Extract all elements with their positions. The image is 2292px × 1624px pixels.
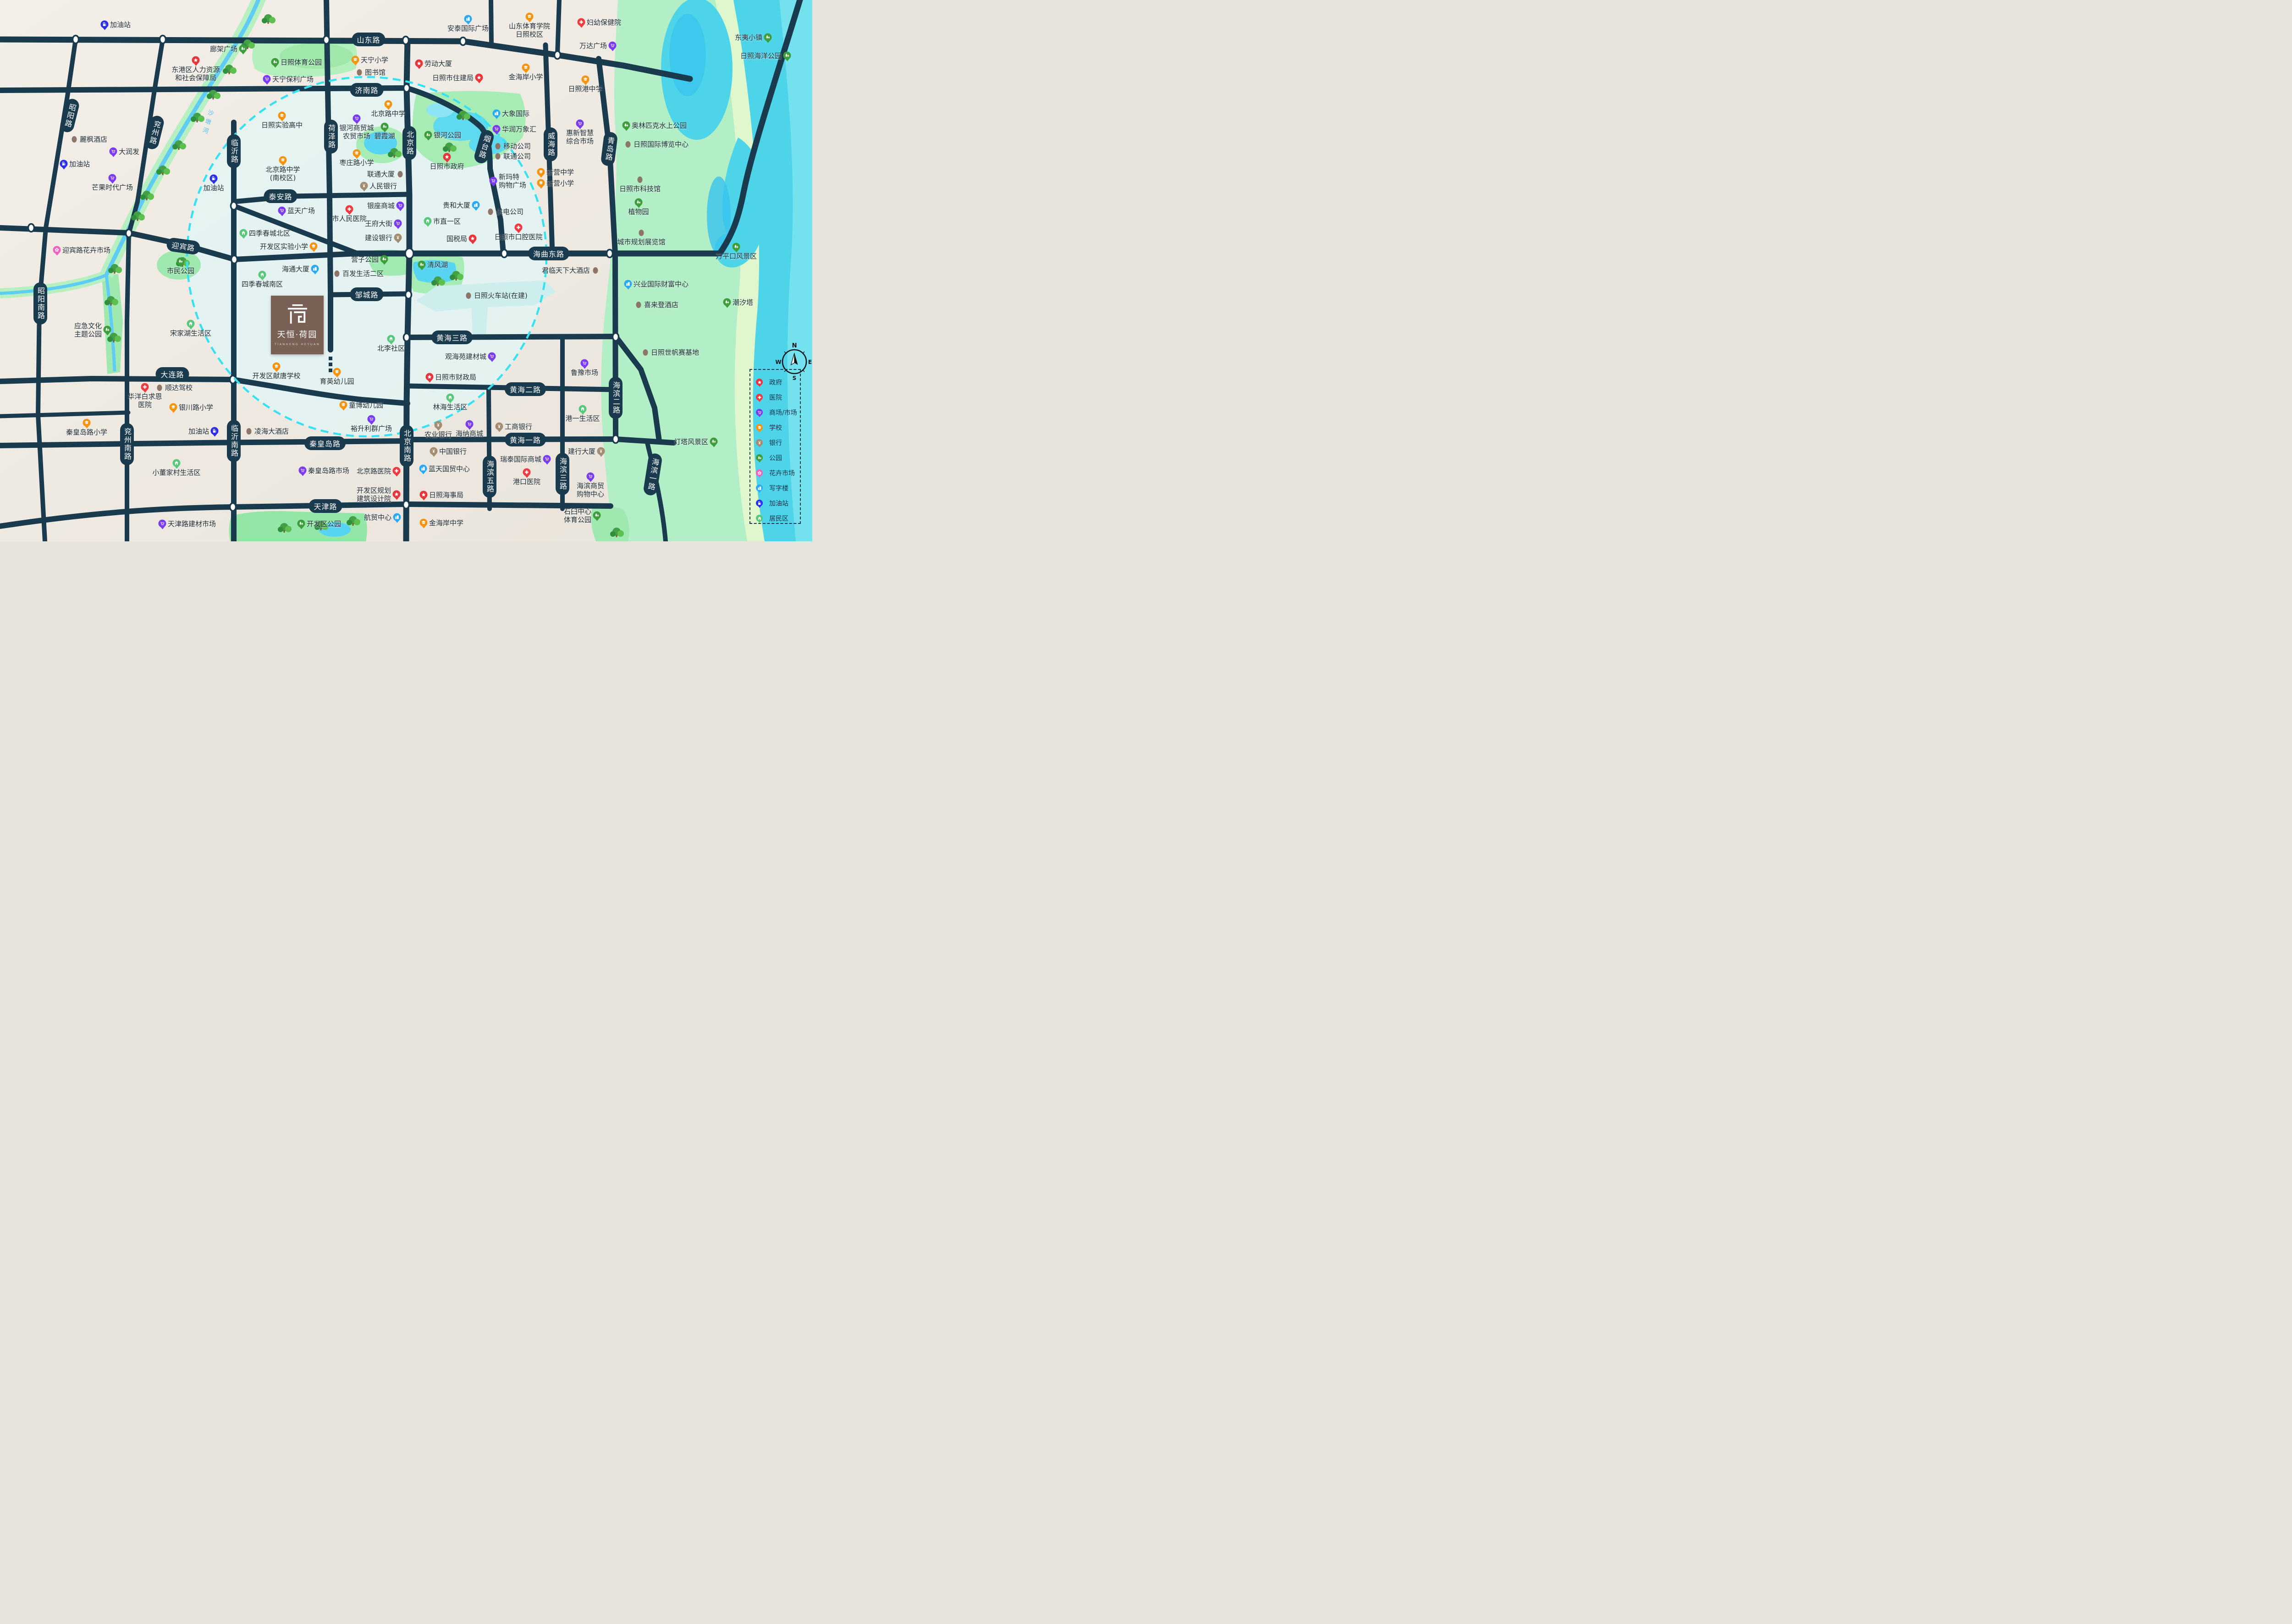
res-pin-icon[interactable]: [387, 335, 395, 343]
office-pin-icon[interactable]: [624, 280, 632, 288]
poi-label: 贵和大厦: [443, 201, 470, 209]
poi-label-line: 航贸中心: [364, 513, 391, 522]
poi-label: 加油站: [188, 427, 209, 435]
poi-label: 开发区实验小学: [260, 242, 308, 251]
park-pin-icon[interactable]: [783, 52, 791, 60]
market-pin-icon[interactable]: [587, 473, 595, 480]
legend-label: 花卉市场: [769, 468, 795, 478]
legend-label: 医院: [769, 393, 782, 402]
office-pin-icon[interactable]: [393, 513, 401, 521]
legend-label: 政府: [769, 378, 782, 387]
poi-label: 新玛特购物广场: [499, 173, 526, 189]
poi-label: 小董家村生活区: [152, 468, 200, 477]
park-pin-icon[interactable]: [424, 131, 432, 139]
road-label-pill: 山东路: [352, 33, 385, 46]
poi-label: 国税局: [446, 235, 467, 243]
poi-label-line: 工商银行: [505, 423, 532, 431]
gov-pin-icon[interactable]: [415, 60, 423, 67]
poi-label-line: 四季春城北区: [249, 229, 290, 237]
poi-label: 银河公园: [434, 131, 461, 139]
poi-label: 瑞泰国际商城: [500, 455, 541, 463]
poi-label: 加油站: [69, 160, 90, 168]
office-pin-icon[interactable]: [464, 15, 472, 23]
poi-label: 建设银行: [365, 234, 392, 242]
compass-w: W: [775, 359, 781, 365]
park-pin-icon[interactable]: [271, 58, 279, 66]
gov-pin-icon[interactable]: [475, 74, 483, 82]
poi-label-line: 中国银行: [439, 447, 467, 456]
poi-dot-icon[interactable]: [335, 270, 340, 277]
road-label-pill: 秦皇岛路: [304, 436, 346, 450]
poi-dot-icon[interactable]: [247, 428, 252, 435]
school-pin-icon[interactable]: [340, 401, 347, 409]
res-pin-icon[interactable]: [446, 394, 454, 402]
poi-label-line: 顺达驾校: [165, 384, 193, 392]
market-pin-icon[interactable]: [353, 115, 361, 122]
poi-label: 日照海洋公园: [740, 52, 782, 60]
poi-label-line: 廊架广场: [210, 45, 237, 53]
road-label-pill: 泰安路: [264, 189, 297, 203]
poi-label: 安泰国际广场: [447, 24, 489, 33]
poi-label-line: 加油站: [203, 184, 224, 192]
flower-pin-icon[interactable]: [53, 246, 61, 254]
poi-label: 开发区献唐学校: [252, 372, 300, 380]
poi-label: 惠新智慧综合市场: [566, 129, 594, 145]
poi-label-line: 日照校区: [509, 30, 550, 39]
legend-item: 银行: [756, 435, 800, 450]
road-label-pill: 昭阳南路: [33, 282, 47, 325]
school-pin-icon[interactable]: [537, 168, 545, 176]
park-pin-icon[interactable]: [623, 121, 630, 129]
road-label-pill: 海曲东路: [528, 247, 569, 260]
school-pin-icon[interactable]: [385, 100, 392, 108]
poi-label-line: 联通大厦: [367, 170, 395, 178]
school-pin-icon[interactable]: [83, 419, 91, 427]
poi-label-line: 加油站: [69, 160, 90, 168]
market-pin-icon[interactable]: [576, 120, 584, 127]
poi-dot-icon[interactable]: [626, 141, 631, 148]
poi-label-line: 开发区规划: [357, 486, 391, 495]
poi-label: 鲁豫市场: [571, 369, 598, 377]
poi-label: 清风湖: [427, 261, 448, 269]
poi-label-line: 体育公园: [564, 516, 591, 524]
market-pin-icon[interactable]: [466, 420, 474, 428]
gov-pin-icon[interactable]: [420, 491, 428, 499]
poi-label-line: 日照实验高中: [261, 121, 303, 129]
poi-label-line: 开发区实验小学: [260, 242, 308, 251]
market-pin-icon[interactable]: [110, 148, 117, 155]
park-pin-icon[interactable]: [723, 298, 731, 306]
market-pin-icon[interactable]: [490, 177, 497, 185]
poi-label: 农业银行: [424, 430, 452, 439]
poi-label: 枣庄路小学: [339, 159, 374, 167]
poi-dot-icon[interactable]: [488, 209, 493, 215]
park-pin-icon[interactable]: [635, 198, 643, 206]
gas-pin-icon[interactable]: [210, 175, 218, 182]
poi-label: 日照市财政局: [435, 373, 476, 381]
poi-label-line: 图书馆: [365, 68, 386, 77]
road-label-pill: 济南路: [350, 83, 383, 97]
poi-label: 宋家湖生活区: [170, 329, 211, 337]
park-pin-icon[interactable]: [593, 512, 601, 519]
poi-dot-icon[interactable]: [638, 176, 643, 183]
market-pin-icon[interactable]: [581, 359, 589, 367]
poi-label: 海纳商城: [456, 429, 483, 438]
poi-dot-icon[interactable]: [398, 171, 403, 177]
poi-dot-icon[interactable]: [72, 136, 77, 143]
res-pin-icon[interactable]: [187, 320, 195, 328]
poi-dot-icon[interactable]: [496, 143, 501, 149]
park-pin-icon[interactable]: [733, 243, 740, 251]
poi-label: 供电公司: [496, 208, 523, 216]
road-label-pill: 邹城路: [350, 287, 383, 301]
legend-item: 居民区: [756, 511, 800, 526]
poi-label: 植物园: [628, 208, 649, 216]
poi-label-line: 宋家湖生活区: [170, 329, 211, 337]
legend-label: 加油站: [769, 499, 788, 508]
res-pin-icon: [756, 515, 763, 522]
poi-label: 新营中学: [546, 168, 574, 176]
poi-label: 港口医院: [513, 478, 540, 486]
poi-dot-icon[interactable]: [639, 230, 644, 236]
bank-pin-icon[interactable]: [496, 423, 503, 430]
poi-label: 麗枫酒店: [80, 135, 107, 143]
road-label-pill: 临沂南路: [227, 420, 241, 462]
poi-label-line: 日照市口腔医院: [494, 233, 542, 241]
poi-label: 劳动大厦: [424, 60, 452, 68]
school-pin-icon[interactable]: [333, 368, 341, 376]
market-pin-icon[interactable]: [299, 467, 307, 474]
school-pin-icon[interactable]: [279, 156, 287, 164]
park-pin-icon[interactable]: [298, 520, 305, 528]
office-pin-icon[interactable]: [472, 201, 480, 209]
poi-dot-icon[interactable]: [157, 385, 162, 391]
poi-label-line: 瑞泰国际商城: [500, 455, 541, 463]
poi-label-line: 鲁豫市场: [571, 369, 598, 377]
poi-label-line: 日照海洋公园: [740, 52, 782, 60]
poi-label-line: 天宁保利广场: [272, 75, 314, 83]
poi-dot-icon[interactable]: [496, 153, 501, 160]
poi-label-line: 日照市政府: [430, 162, 464, 171]
poi-label: 北京路中学: [371, 110, 405, 118]
poi-label-line: 日照世帆赛基地: [651, 348, 699, 357]
market-pin-icon[interactable]: [609, 42, 617, 50]
park-pin-icon[interactable]: [710, 438, 718, 446]
poi-label-line: 日照国际博览中心: [634, 140, 689, 149]
market-pin-icon[interactable]: [394, 220, 402, 227]
poi-label-line: 日照市科技馆: [619, 185, 661, 193]
legend-label: 居民区: [769, 514, 788, 523]
map-legend: 政府医院商场/市场学校银行公园花卉市场写字楼加油站居民区: [749, 369, 801, 524]
legend-label: 银行: [769, 438, 782, 447]
school-pin-icon[interactable]: [278, 112, 286, 120]
poi-label-line: 贵和大厦: [443, 201, 470, 209]
poi-label: 日照实验高中: [261, 121, 303, 129]
poi-label: 银川路小学: [179, 403, 213, 412]
market-pin-icon[interactable]: [263, 75, 271, 83]
hosp-pin-icon[interactable]: [578, 18, 585, 26]
poi-label: 观海苑建材城: [445, 352, 486, 361]
school-pin-icon[interactable]: [170, 403, 177, 411]
poi-label: 银座商城: [367, 202, 395, 210]
poi-label: 市直一区: [433, 217, 461, 226]
poi-label-line: 植物园: [628, 208, 649, 216]
poi-label-line: 裕升利群广场: [351, 424, 392, 433]
poi-label: 联通大厦: [367, 170, 395, 178]
market-pin-icon[interactable]: [488, 352, 496, 360]
res-pin-icon[interactable]: [173, 459, 181, 467]
poi-label-line: 北京路中学: [265, 165, 300, 174]
poi-label: 芒果时代广场: [92, 183, 133, 192]
road-label-pill: 黄海二路: [505, 382, 546, 396]
bank-pin-icon[interactable]: [430, 447, 438, 455]
poi-label: 喜来登酒店: [644, 301, 678, 309]
legend-label: 商场/市场: [769, 408, 797, 417]
poi-label-line: 四季春城南区: [242, 280, 283, 288]
poi-label-line: 山东体育学院: [509, 22, 550, 30]
poi-label: 凌海大酒店: [254, 427, 289, 435]
poi-label: 营子公园: [351, 255, 379, 264]
poi-label: 奥林匹克水上公园: [632, 121, 687, 130]
poi-label-line: 港口医院: [513, 478, 540, 486]
poi-label-line: 新营中学: [546, 168, 574, 176]
office-pin-icon[interactable]: [419, 465, 427, 473]
school-pin-icon[interactable]: [273, 363, 281, 370]
poi-label-line: 华润万象汇: [502, 125, 536, 133]
poi-label: 秦皇岛路小学: [66, 428, 107, 436]
poi-dot-icon[interactable]: [593, 267, 598, 274]
poi-label: 日照国际博览中心: [634, 140, 689, 149]
poi-label-line: 金海岸中学: [429, 519, 463, 527]
poi-label-line: 枣庄路小学: [339, 159, 374, 167]
poi-label-line: 北李社区: [377, 344, 405, 352]
poi-label-line: 人民银行: [369, 182, 397, 190]
poi-label: 中国银行: [439, 447, 467, 456]
poi-label-line: 兴业国际财富中心: [634, 280, 689, 288]
poi-label: 万平口风景区: [716, 252, 757, 260]
poi-label-line: 灯塔风景区: [674, 438, 708, 446]
poi-label: 君临天下大酒店: [542, 266, 590, 275]
poi-dot-icon[interactable]: [643, 349, 648, 356]
poi-label-line: 安泰国际广场: [447, 24, 489, 33]
poi-label-line: 万平口风景区: [716, 252, 757, 260]
poi-label-line: 秦皇岛路小学: [66, 428, 107, 436]
office-pin-icon[interactable]: [493, 110, 501, 117]
poi-label: 童博幼儿园: [349, 401, 383, 409]
poi-label-line: 建设银行: [365, 234, 392, 242]
park-pin-icon[interactable]: [104, 326, 111, 334]
poi-label-line: 劳动大厦: [424, 60, 452, 68]
bank-pin-icon[interactable]: [360, 182, 368, 190]
road-label-pill: 兖州南路: [120, 423, 134, 465]
gov-pin-icon[interactable]: [393, 490, 401, 498]
gov-pin-icon[interactable]: [469, 235, 477, 242]
legend-item: 花卉市场: [756, 465, 800, 480]
poi-label-line: 天津路建材市场: [168, 520, 216, 528]
poi-label: 北李社区: [377, 344, 405, 352]
poi-dot-icon[interactable]: [636, 302, 641, 308]
market-pin-icon[interactable]: [368, 415, 375, 423]
res-pin-icon[interactable]: [240, 229, 248, 237]
poi-label: 日照市政府: [430, 162, 464, 171]
school-pin-icon[interactable]: [310, 242, 318, 250]
legend-item: 写字楼: [756, 480, 800, 495]
gov-pin-icon: [756, 379, 763, 385]
poi-label: 日照火车站(在建): [474, 292, 528, 300]
office-pin-icon[interactable]: [311, 265, 319, 273]
poi-label-line: 育英幼儿园: [320, 377, 354, 385]
park-pin-icon[interactable]: [381, 123, 389, 131]
park-pin-icon[interactable]: [239, 45, 247, 53]
road-label-pill: 黄海三路: [431, 330, 473, 344]
gas-pin-icon[interactable]: [211, 427, 219, 435]
poi-label-line: 东夷小镇: [735, 33, 762, 42]
poi-label: 日照市住建局: [432, 74, 474, 82]
res-pin-icon[interactable]: [579, 405, 587, 413]
poi-dot-icon[interactable]: [357, 69, 362, 76]
poi-label-line: 日照海事局: [429, 491, 463, 499]
poi-label: 裕升利群广场: [351, 424, 392, 433]
poi-label-line: 建行大厦: [568, 447, 595, 456]
poi-label-line: 芒果时代广场: [92, 183, 133, 192]
hosp-pin-icon[interactable]: [515, 224, 523, 231]
res-pin-icon[interactable]: [424, 217, 432, 225]
poi-label-line: 营子公园: [351, 255, 379, 264]
poi-label: 新营小学: [546, 179, 574, 187]
school-pin-icon: [756, 424, 763, 431]
poi-label-line: 购物中心: [577, 490, 604, 498]
bank-pin-icon: [756, 439, 763, 446]
market-pin-icon[interactable]: [397, 202, 404, 209]
park-pin-icon[interactable]: [764, 33, 772, 41]
poi-label: 图书馆: [365, 68, 386, 77]
poi-label: 东夷小镇: [735, 33, 762, 42]
poi-label: 大润发: [119, 148, 139, 156]
poi-label-line: 万达广场: [579, 42, 607, 50]
poi-label: 海滨商贸购物中心: [577, 482, 604, 498]
poi-label-line: (南校区): [265, 174, 300, 182]
poi-label: 大象国际: [502, 110, 529, 118]
market-pin-icon[interactable]: [278, 207, 286, 215]
poi-label-line: 迎宾路花卉市场: [62, 246, 110, 254]
market-pin-icon[interactable]: [493, 125, 501, 133]
bank-pin-icon[interactable]: [435, 421, 442, 429]
poi-label-line: 联通公司: [503, 152, 531, 160]
poi-label: 王府大街: [365, 220, 392, 228]
legend-label: 公园: [769, 453, 782, 462]
poi-label-line: 日照市财政局: [435, 373, 476, 381]
park-pin-icon[interactable]: [380, 255, 388, 263]
res-pin-icon[interactable]: [259, 271, 266, 279]
road-label-pill: 大连路: [155, 367, 189, 381]
poi-label: 日照市科技馆: [619, 185, 661, 193]
poi-label: 顺达驾校: [165, 384, 193, 392]
market-pin-icon: [756, 409, 763, 416]
poi-label: 日照体育公园: [281, 58, 322, 66]
gas-pin-icon[interactable]: [101, 21, 109, 28]
poi-label: 廊架广场: [210, 45, 237, 53]
poi-label-line: 农贸市场: [339, 132, 374, 140]
poi-label: 东港区人力资源和社会保障局: [171, 66, 220, 82]
school-pin-icon[interactable]: [420, 519, 428, 527]
poi-label: 人民银行: [369, 182, 397, 190]
poi-label: 北京路中学(南校区): [265, 165, 300, 182]
road-label-pill: 威海路: [544, 127, 557, 161]
bank-pin-icon[interactable]: [394, 234, 402, 242]
poi-label-line: 市民公园: [167, 267, 194, 275]
poi-label: 加油站: [110, 21, 131, 29]
park-pin-icon[interactable]: [177, 258, 185, 265]
poi-label: 日照海事局: [429, 491, 463, 499]
poi-label-line: 金海岸小学: [508, 73, 543, 81]
school-pin-icon[interactable]: [522, 64, 530, 72]
poi-label-line: 观海苑建材城: [445, 352, 486, 361]
gov-pin-icon[interactable]: [443, 153, 451, 161]
poi-label-line: 日照体育公园: [281, 58, 322, 66]
gov-pin-icon[interactable]: [426, 373, 434, 381]
poi-dot-icon[interactable]: [466, 292, 471, 299]
legend-item: 公园: [756, 450, 800, 465]
poi-label: 林海生活区: [433, 403, 467, 411]
bank-pin-icon[interactable]: [597, 447, 605, 455]
market-pin-icon[interactable]: [109, 174, 116, 182]
hosp-pin-icon[interactable]: [141, 383, 149, 391]
office-pin-icon: [756, 484, 763, 491]
hosp-pin-icon[interactable]: [523, 468, 531, 476]
road-label-pill: 北京路: [402, 126, 416, 160]
poi-label-line: 妇幼保健院: [587, 18, 621, 27]
project-logo[interactable]: 天恒·荷园 TIANHENG HEYUAN: [271, 296, 324, 354]
school-pin-icon[interactable]: [582, 76, 590, 83]
park-pin-icon[interactable]: [418, 261, 426, 269]
poi-label: 天宁小学: [361, 56, 388, 64]
hosp-pin-icon[interactable]: [346, 205, 353, 213]
poi-label-line: 银座商城: [367, 202, 395, 210]
poi-label: 日照港中学: [568, 85, 602, 93]
location-map: N E S W 沙墩河 天恒·荷园 TIANHENG HEYUAN 政府医院商场…: [0, 0, 812, 541]
poi-label-line: 购物广场: [499, 181, 526, 189]
poi-label: 市民公园: [167, 267, 194, 275]
poi-label: 四季春城南区: [242, 280, 283, 288]
poi-label: 蓝天国贸中心: [429, 465, 470, 473]
park-pin-icon: [756, 454, 763, 461]
gov-pin-icon[interactable]: [192, 56, 200, 64]
poi-label: 应急文化主题公园: [74, 322, 102, 338]
school-pin-icon[interactable]: [526, 13, 534, 21]
gas-pin-icon[interactable]: [60, 160, 68, 168]
market-pin-icon[interactable]: [543, 455, 551, 463]
poi-label: 日照世帆赛基地: [651, 348, 699, 357]
poi-label: 城市规划展览馆: [617, 238, 665, 246]
road-label-pill: 海滨五路: [483, 456, 496, 498]
poi-label-line: 奥林匹克水上公园: [632, 121, 687, 130]
poi-label-line: 石臼中心: [564, 507, 591, 516]
school-pin-icon[interactable]: [537, 179, 545, 187]
road-label-pill: 海滨二路: [609, 377, 623, 419]
legend-item: 加油站: [756, 495, 800, 511]
poi-label: 迎宾路花卉市场: [62, 246, 110, 254]
hosp-pin-icon[interactable]: [393, 467, 401, 475]
school-pin-icon[interactable]: [353, 149, 361, 157]
market-pin-icon[interactable]: [159, 520, 166, 528]
school-pin-icon[interactable]: [352, 56, 359, 64]
poi-label-line: 和社会保障局: [171, 74, 220, 82]
poi-label-line: 秦皇岛路市场: [308, 467, 349, 475]
poi-label: 石臼中心体育公园: [564, 507, 591, 524]
gas-pin-icon: [756, 500, 763, 506]
poi-label: 四季春城北区: [249, 229, 290, 237]
flower-pin-icon: [756, 469, 763, 476]
